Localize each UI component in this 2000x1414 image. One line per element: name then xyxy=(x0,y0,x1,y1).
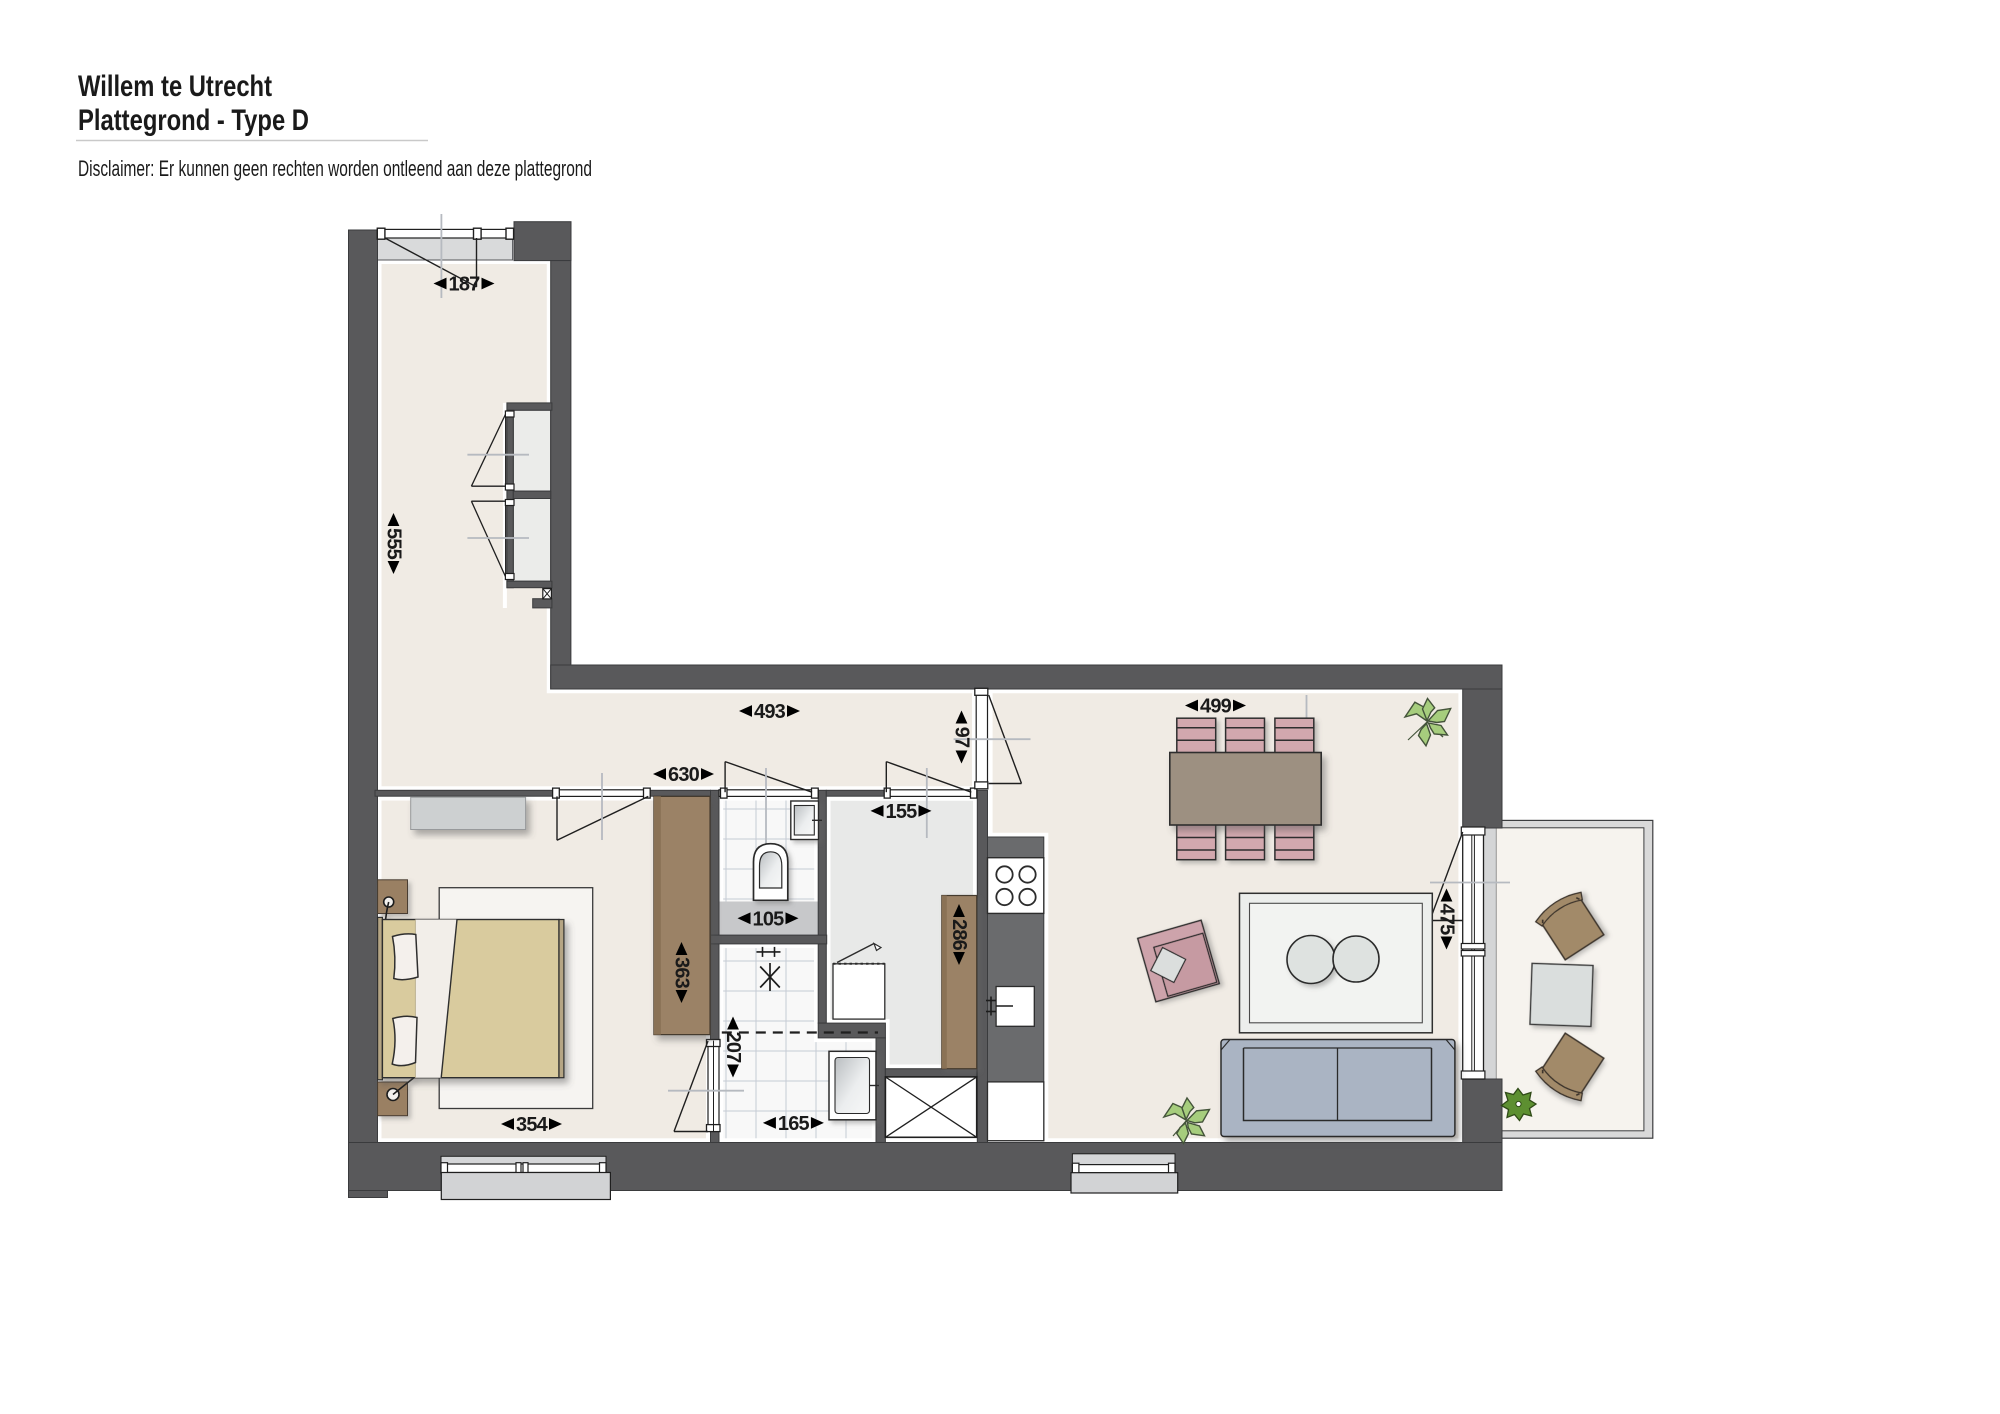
svg-text:155: 155 xyxy=(886,801,918,823)
svg-text:Willem te Utrecht: Willem te Utrecht xyxy=(78,70,272,103)
svg-text:Plattegrond - Type D: Plattegrond - Type D xyxy=(78,104,309,137)
svg-text:286: 286 xyxy=(948,919,970,951)
svg-text:97: 97 xyxy=(951,727,973,748)
svg-text:499: 499 xyxy=(1200,696,1232,718)
svg-text:363: 363 xyxy=(671,957,693,989)
svg-text:354: 354 xyxy=(516,1114,549,1136)
svg-text:105: 105 xyxy=(753,909,785,931)
svg-text:207: 207 xyxy=(722,1032,744,1064)
svg-text:165: 165 xyxy=(778,1113,810,1135)
svg-text:493: 493 xyxy=(754,701,786,723)
svg-text:475: 475 xyxy=(1436,904,1458,936)
svg-text:555: 555 xyxy=(383,528,405,560)
svg-text:187: 187 xyxy=(449,274,481,296)
svg-text:630: 630 xyxy=(668,764,700,786)
svg-text:Disclaimer: Er kunnen geen rec: Disclaimer: Er kunnen geen rechten worde… xyxy=(78,156,592,181)
